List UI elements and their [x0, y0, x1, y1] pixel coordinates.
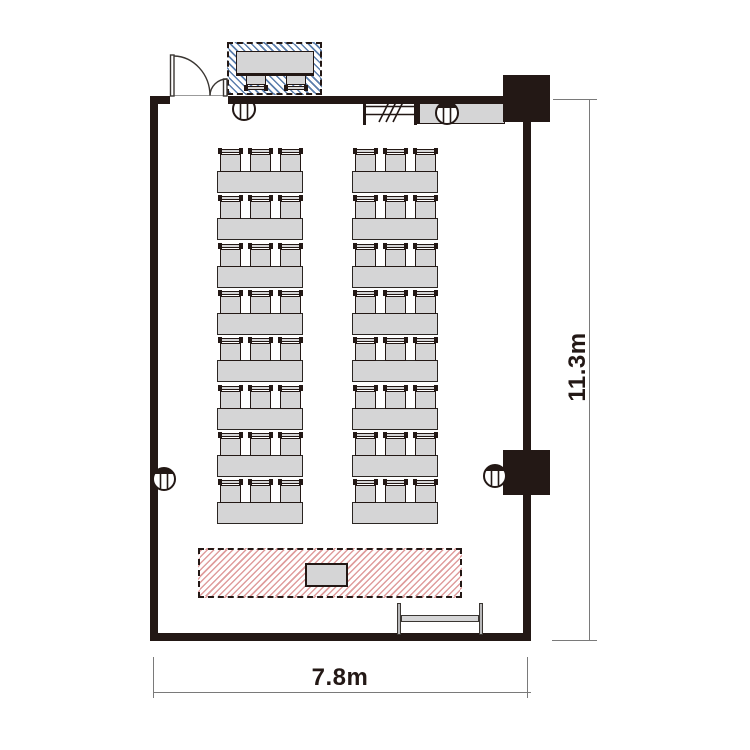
seating-table [217, 218, 303, 240]
width-dimension-label: 7.8m [300, 664, 380, 692]
chair-seat [355, 201, 376, 219]
chair [383, 386, 408, 409]
seating-table [217, 171, 303, 193]
chair [278, 480, 303, 503]
chair-back [248, 244, 273, 248]
chair-back [218, 338, 243, 342]
chair [413, 338, 438, 361]
chair-seat [220, 391, 241, 409]
chair [278, 149, 303, 172]
chair [248, 433, 273, 456]
chair-seat [220, 249, 241, 267]
seating-table [217, 360, 303, 382]
chair-back [248, 480, 273, 484]
chair-seat [250, 249, 271, 267]
chair-seat [385, 391, 406, 409]
chair-seat [220, 485, 241, 503]
chair-back [413, 196, 438, 200]
chair-seat [415, 296, 436, 314]
chair [383, 338, 408, 361]
chair-seat [280, 438, 301, 456]
chair-back [244, 86, 268, 90]
chair-back [218, 149, 243, 153]
chair-back [383, 386, 408, 390]
chair-back [248, 291, 273, 295]
dimension-line-width [153, 692, 531, 693]
chair [248, 480, 273, 503]
double-door-icon [171, 55, 228, 96]
chair-seat [385, 343, 406, 361]
seating-table [352, 218, 438, 240]
chair [218, 244, 243, 267]
service-counter [417, 103, 505, 124]
chair-back [284, 86, 308, 90]
chair-back [383, 196, 408, 200]
seating-table [352, 502, 438, 524]
chair [278, 196, 303, 219]
chair-back [278, 196, 303, 200]
chair-back [413, 386, 438, 390]
chair-seat [385, 201, 406, 219]
chair [413, 149, 438, 172]
chair [353, 149, 378, 172]
chair [413, 291, 438, 314]
chair-back [353, 196, 378, 200]
chair-seat [385, 154, 406, 172]
chair-back [218, 433, 243, 437]
chair-seat [415, 154, 436, 172]
chair-seat [280, 154, 301, 172]
chair-seat [355, 154, 376, 172]
seating-table [217, 455, 303, 477]
chair-back [218, 386, 243, 390]
chair [383, 433, 408, 456]
seating-table [352, 360, 438, 382]
chair [278, 433, 303, 456]
seating-table [217, 502, 303, 524]
seating-table [217, 313, 303, 335]
chair-seat [280, 249, 301, 267]
chair [278, 291, 303, 314]
chair [218, 196, 243, 219]
chair [413, 244, 438, 267]
chair-back [353, 338, 378, 342]
chair-seat [250, 296, 271, 314]
chair-back [248, 149, 273, 153]
chair [278, 244, 303, 267]
chair-seat [220, 296, 241, 314]
chair-back [353, 244, 378, 248]
chair [353, 480, 378, 503]
chair [383, 480, 408, 503]
chair-seat [355, 343, 376, 361]
chair [413, 433, 438, 456]
dimension-ext-bottom-right2 [527, 657, 528, 698]
chair [218, 291, 243, 314]
seating-table [352, 408, 438, 430]
chair-seat [385, 296, 406, 314]
dimension-ext-bottom-left [153, 657, 154, 698]
pillar-top-right [503, 75, 550, 122]
chair-back [413, 433, 438, 437]
chair-seat [415, 249, 436, 267]
chair [248, 149, 273, 172]
chair-seat [355, 438, 376, 456]
chair-seat [415, 391, 436, 409]
dimension-ext-top-right [553, 99, 597, 100]
chair [248, 196, 273, 219]
chair-back [218, 244, 243, 248]
chair-seat [385, 438, 406, 456]
chair [248, 386, 273, 409]
chair [248, 244, 273, 267]
chair-seat [355, 391, 376, 409]
dimension-ext-bottom-right [552, 640, 597, 641]
chair-back [383, 291, 408, 295]
chair-back [383, 149, 408, 153]
floor-plan: 11.3m 7.8m [0, 0, 750, 750]
chair-back [248, 386, 273, 390]
chair [383, 149, 408, 172]
pillar-middle-right [503, 450, 550, 495]
chair-back [383, 338, 408, 342]
chair [218, 149, 243, 172]
chair-seat [280, 485, 301, 503]
chair [383, 244, 408, 267]
chair-back [218, 291, 243, 295]
chair-back [248, 196, 273, 200]
chair-back [278, 480, 303, 484]
chair-seat [280, 391, 301, 409]
chair-back [278, 149, 303, 153]
chair-seat [280, 201, 301, 219]
whiteboard-board [401, 615, 479, 622]
chair [248, 291, 273, 314]
chair-seat [355, 485, 376, 503]
chair-back [278, 433, 303, 437]
chair-seat [220, 343, 241, 361]
chair-seat [250, 154, 271, 172]
chair [248, 338, 273, 361]
chair [383, 291, 408, 314]
door-opening [170, 95, 228, 105]
chair-back [383, 433, 408, 437]
chair-seat [220, 438, 241, 456]
lectern-table [305, 563, 348, 587]
chair-back [218, 480, 243, 484]
chair-back [353, 480, 378, 484]
chair [278, 338, 303, 361]
seating-table [352, 455, 438, 477]
chair-seat [250, 201, 271, 219]
chair-back [383, 480, 408, 484]
chair [353, 244, 378, 267]
chair [413, 480, 438, 503]
seating-table [352, 313, 438, 335]
seating-table [217, 408, 303, 430]
chair-back [413, 244, 438, 248]
chair-seat [415, 485, 436, 503]
chair-seat [355, 249, 376, 267]
chair-seat [385, 485, 406, 503]
chair [218, 338, 243, 361]
chair [353, 291, 378, 314]
chair-back [248, 338, 273, 342]
chair-back [353, 386, 378, 390]
chair [413, 386, 438, 409]
chair-seat [220, 154, 241, 172]
chair-seat [220, 201, 241, 219]
chair [353, 433, 378, 456]
chair-back [218, 196, 243, 200]
seating-table [217, 266, 303, 288]
chair-seat [280, 296, 301, 314]
chair-back [278, 386, 303, 390]
chair-back [353, 149, 378, 153]
height-dimension-label: 11.3m [564, 327, 590, 407]
whiteboard-post-right [479, 603, 483, 635]
chair [353, 196, 378, 219]
reception-table [236, 51, 314, 76]
seating-table [352, 266, 438, 288]
chair-seat [250, 343, 271, 361]
chair-seat [250, 391, 271, 409]
chair-back [413, 480, 438, 484]
chair [383, 196, 408, 219]
chair-back [413, 291, 438, 295]
chair-seat [415, 438, 436, 456]
chair-seat [250, 485, 271, 503]
chair [218, 433, 243, 456]
chair-seat [385, 249, 406, 267]
chair-back [383, 244, 408, 248]
chair-back [413, 338, 438, 342]
chair-back [413, 149, 438, 153]
chair-seat [280, 343, 301, 361]
chair [218, 386, 243, 409]
chair-back [353, 291, 378, 295]
chair [278, 386, 303, 409]
chair-back [248, 433, 273, 437]
seating-table [352, 171, 438, 193]
chair-seat [415, 343, 436, 361]
chair [353, 338, 378, 361]
chair-seat [355, 296, 376, 314]
chair [413, 196, 438, 219]
chair-back [353, 433, 378, 437]
chair-seat [250, 438, 271, 456]
chair-back [278, 244, 303, 248]
chair [218, 480, 243, 503]
chair-back [278, 338, 303, 342]
chair-seat [415, 201, 436, 219]
chair [353, 386, 378, 409]
chair-back [278, 291, 303, 295]
